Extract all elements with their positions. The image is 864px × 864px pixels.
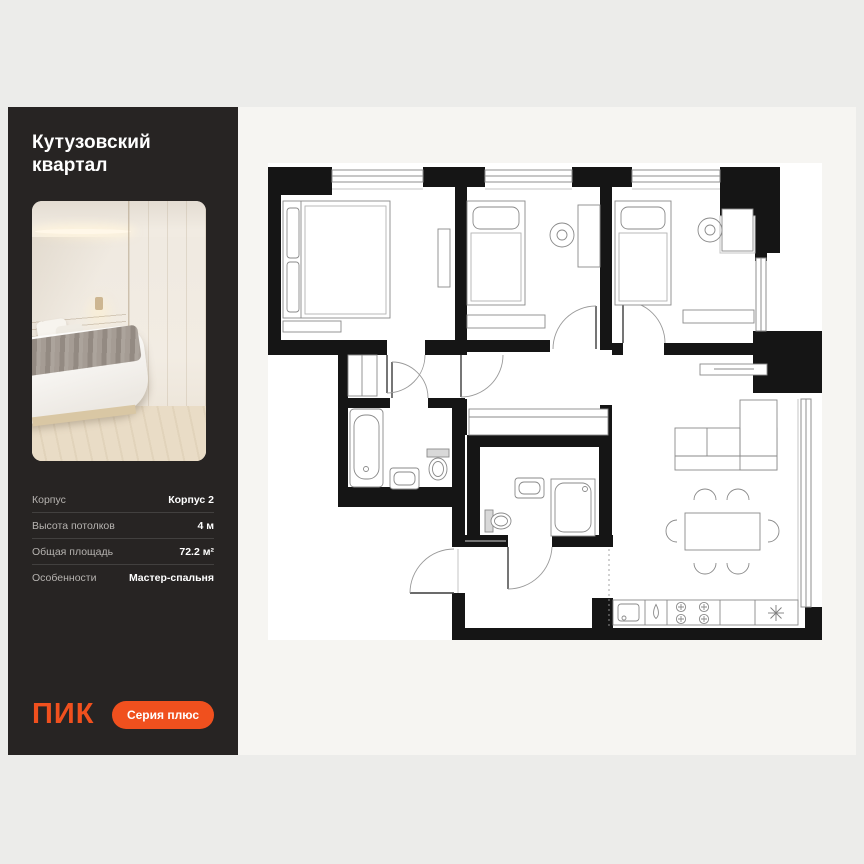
spec-list: Корпус Корпус 2 Высота потолков 4 м Обща… (32, 487, 214, 590)
sidebar: Кутузовский квартал Корпус Корпус 2 Высо… (8, 107, 238, 755)
bedroom-photo (32, 201, 206, 461)
bathroom (350, 409, 449, 489)
pik-logo: ПИК (32, 700, 94, 729)
master-bedroom (283, 201, 450, 396)
spec-label: Высота потолков (32, 520, 115, 532)
spec-value: Мастер-спальня (129, 572, 214, 584)
spec-row-ceiling-height: Высота потолков 4 м (32, 513, 214, 539)
spec-label: Корпус (32, 494, 66, 506)
series-plus-badge: Серия плюс (112, 701, 214, 729)
kitchen-living-room (609, 364, 798, 626)
floor-plan-svg (268, 163, 822, 640)
spec-row-total-area: Общая площадь 72.2 м² (32, 539, 214, 565)
wardrobe-room (469, 409, 608, 435)
listing-card[interactable]: Кутузовский квартал Корпус Корпус 2 Высо… (8, 107, 856, 755)
spec-label: Общая площадь (32, 546, 113, 558)
plan-panel (238, 107, 856, 755)
brand-row: ПИК Серия плюс (32, 700, 214, 729)
spec-value: Корпус 2 (168, 494, 214, 506)
bedroom-3 (615, 201, 754, 323)
spec-value: 72.2 м² (179, 546, 214, 558)
spec-value: 4 м (197, 520, 214, 532)
shower-room (485, 478, 595, 536)
spec-label: Особенности (32, 572, 96, 584)
floor-plan (268, 163, 822, 640)
spec-row-korpus: Корпус Корпус 2 (32, 487, 214, 513)
photo-sconce-light (95, 297, 103, 310)
project-title: Кутузовский квартал (32, 132, 214, 178)
spec-row-features: Особенности Мастер-спальня (32, 565, 214, 590)
